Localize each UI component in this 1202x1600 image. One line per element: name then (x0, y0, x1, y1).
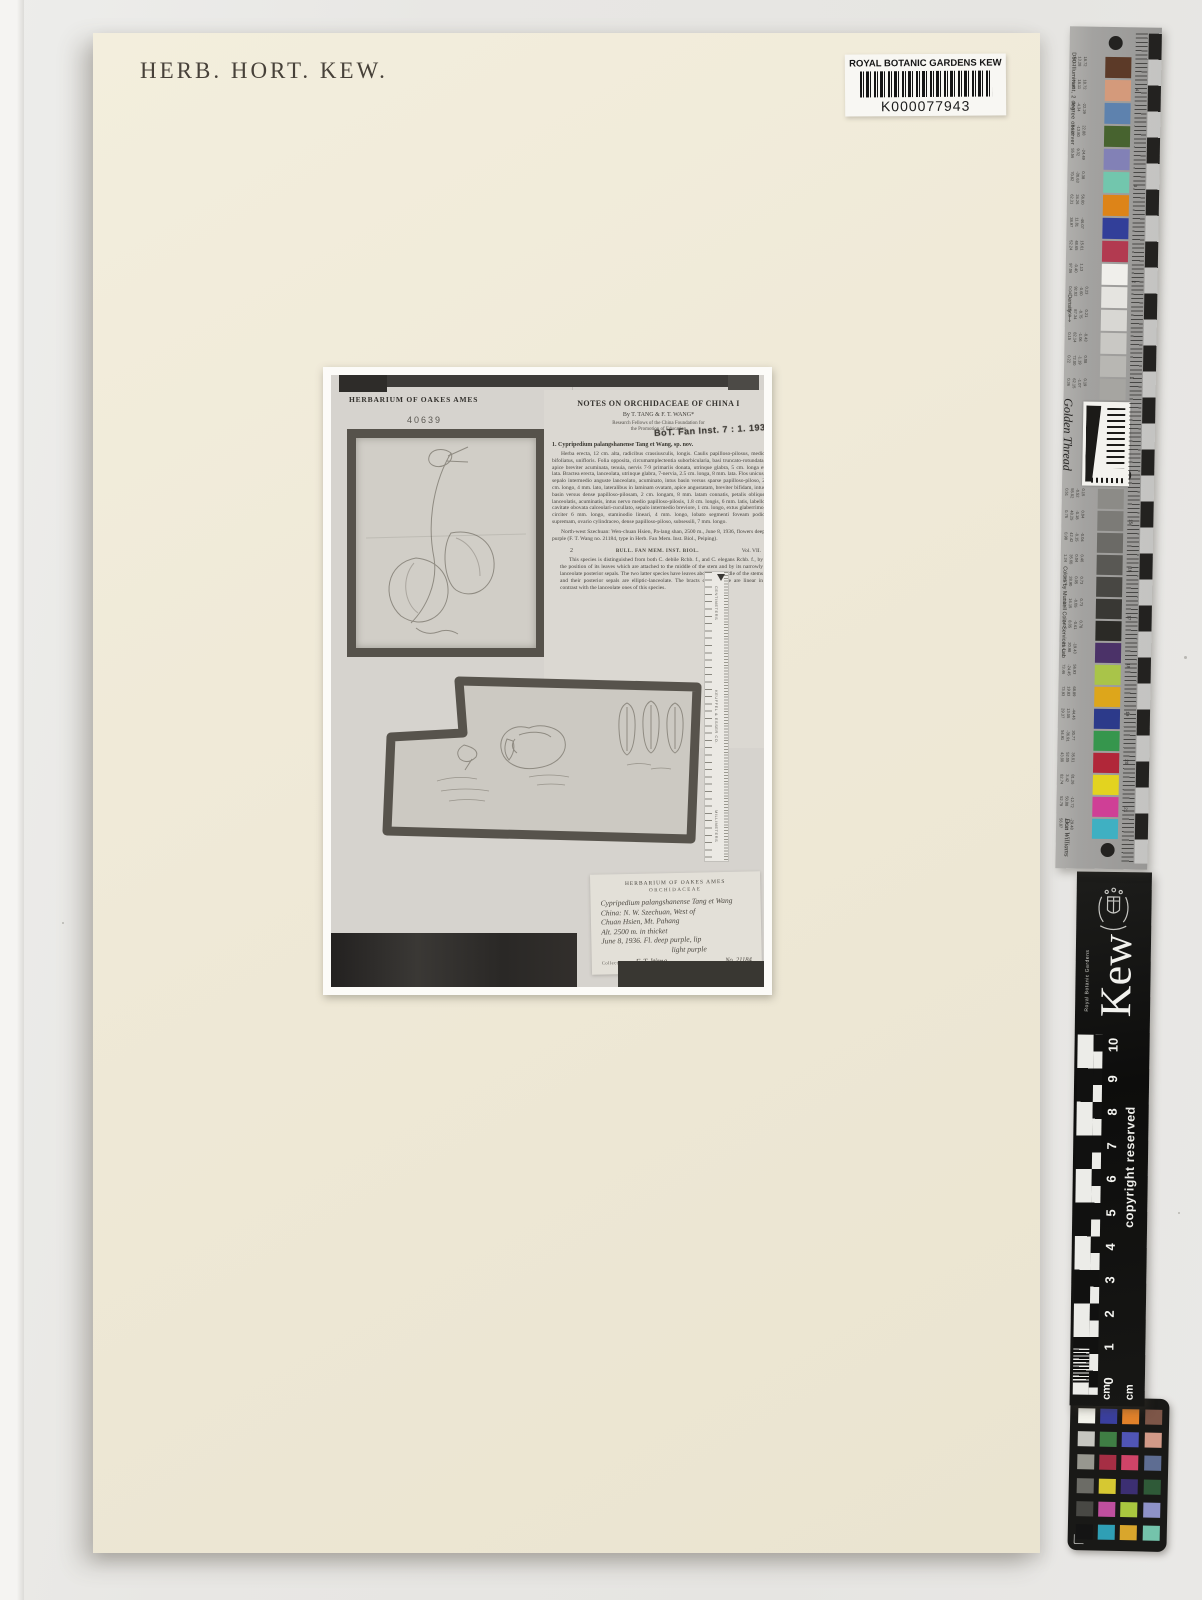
kew-cm-number: 2 (1103, 1306, 1117, 1322)
lab-value: 81.26 (1070, 774, 1075, 794)
lab-value: 82.74 (1059, 774, 1064, 794)
lab-value: 52.79 (1058, 796, 1063, 816)
journal-footer-line: 2 BULL. FAN MEM. INST. BIOL. Vol. VII. (552, 548, 764, 554)
gt-lab-values: 38.1213.2818.72 (1071, 56, 1104, 78)
lab-value: 18.72 (1082, 56, 1087, 77)
kew-cm-number: 6 (1105, 1171, 1119, 1187)
gt-edge-number: 17 (1127, 615, 1132, 620)
lab-value: 0.15 (1080, 488, 1085, 508)
gt-color-patch (1093, 731, 1119, 751)
lab-value: 55.02 (1069, 488, 1074, 508)
photo-dark-corner-topleft (339, 375, 387, 392)
lab-value: 87.34 (1072, 309, 1077, 330)
lab-value: 66.43 (1071, 79, 1076, 100)
label-family: ORCHIDACEAE (600, 886, 750, 894)
royal-botanic-gardens-label: Royal Botanic Gardens (1084, 950, 1091, 1012)
mounted-photograph: HERBARIUM OF OAKES AMES 40639 (323, 367, 772, 995)
lab-value: 56.60 (1080, 194, 1085, 215)
barcode-label: ROYAL BOTANIC GARDENS KEW K000077943 (845, 53, 1006, 116)
lab-value: -30.63 (1075, 171, 1080, 192)
gt-lab-values: 29.3713.05-44.46 (1060, 708, 1093, 729)
color-patch (1100, 1409, 1117, 1424)
gt-color-patch (1105, 57, 1131, 78)
barcode-number: K000077943 (845, 97, 1006, 114)
color-patch (1098, 1525, 1115, 1540)
lab-value: 62.31 (1069, 194, 1074, 215)
ruler-hole (1101, 843, 1115, 857)
gt-color-patch (1104, 126, 1130, 147)
gt-lab-values: 66.4318.1118.72 (1071, 79, 1104, 101)
gt-color-patch (1092, 797, 1118, 817)
kew-mm-hatching (1073, 1348, 1089, 1382)
lab-value: 0.22 (1066, 355, 1071, 376)
target-dashes-icon (1091, 478, 1125, 484)
lab-value: 11.81 (1074, 217, 1079, 238)
kew-cm-number: 10 (1106, 1037, 1120, 1053)
handwritten-line: light purple (671, 943, 751, 954)
running-title: BULL. FAN MEM. INST. BIOL. (616, 549, 699, 554)
color-patch (1099, 1478, 1116, 1493)
lab-value: 48.25 (1069, 510, 1074, 530)
lab-value: -0.52 (1075, 488, 1080, 508)
gt-edge-number: 3 (1133, 185, 1138, 188)
color-checker-grid (1076, 1408, 1162, 1541)
gt-lab-values: 0.7548.25-0.180.04 (1063, 510, 1096, 531)
dissection-sketches (379, 673, 709, 848)
herbarium-sheet: HERB. HORT. KEW. ROYAL BOTANIC GARDENS K… (93, 33, 1040, 1553)
gt-color-patch (1103, 195, 1129, 216)
lab-value: -0.05 (1073, 598, 1078, 618)
kew-crest-icon (1091, 886, 1136, 937)
gt-lab-values: 82.743.4281.26 (1059, 774, 1092, 795)
kew-logo: Kew (1094, 934, 1139, 1018)
color-patch (1076, 1501, 1093, 1516)
gt-lab-values: 0.0492.02-0.600.23 (1067, 286, 1100, 308)
photo-ruler-centimeters-label: CENTIMETERS (714, 586, 719, 620)
gt-lab-values: 1.2435.600.040.46 (1062, 554, 1095, 575)
color-patch (1077, 1478, 1094, 1493)
lab-value: 20.98 (1066, 642, 1071, 662)
gt-edge-number: 21 (1123, 807, 1128, 812)
color-patch (1122, 1432, 1139, 1447)
gt-lab-values: 55.569.32-24.49 (1070, 148, 1103, 170)
lab-value: 0.23 (1084, 286, 1089, 307)
gt-lab-values: 38.9711.81-46.07 (1068, 217, 1101, 239)
color-patch (1144, 1456, 1161, 1471)
gt-lab-values: 1.8716.15-0.050.73 (1062, 598, 1095, 619)
gt-lab-values: 54.91-36.9130.77 (1059, 730, 1092, 751)
lab-value: 56.87 (1058, 818, 1063, 838)
lab-value: 55.56 (1070, 148, 1075, 169)
gt-color-patch (1098, 489, 1124, 509)
lab-value: -1.06 (1077, 332, 1082, 353)
gt-edge-numbers: 432115161718192021 (1070, 26, 1162, 28)
scan-canvas: HERB. HORT. KEW. ROYAL BOTANIC GARDENS K… (0, 0, 1202, 1600)
gt-lab-values: 70.82-30.630.38 (1069, 171, 1102, 193)
gt-lab-values: 3.428.05-0.610.78 (1061, 620, 1094, 641)
gt-lab-values: 73.9319.8368.89 (1060, 686, 1093, 707)
lab-value: 0.08 (1082, 355, 1087, 376)
gt-color-patch (1093, 753, 1119, 773)
lab-value: 28.90 (1068, 576, 1073, 596)
lab-value: 72.00 (1071, 355, 1076, 376)
golden-thread-logo: Golden Thread (1059, 398, 1075, 471)
gt-lab-values: 97.06-0.401.13 (1068, 263, 1101, 285)
lab-value: 0.73 (1079, 576, 1084, 596)
gt-color-patch (1105, 80, 1131, 101)
lab-value: 38.12 (1071, 56, 1076, 77)
dissection-sheet (379, 673, 709, 848)
lab-value: 42.42 (1068, 532, 1073, 552)
gt-lab-values: 52.7950.88-12.72 (1058, 796, 1091, 817)
lab-value: -0.61 (1072, 620, 1077, 640)
lab-value: 49.87 (1070, 102, 1075, 123)
plant-sketch (356, 438, 536, 648)
lab-value: 30.77 (1070, 730, 1075, 750)
color-patch (1144, 1433, 1161, 1448)
gt-lab-values: 0.2272.00-1.190.08 (1066, 355, 1099, 377)
photo-dark-band-bottom-right (618, 961, 764, 987)
lab-value: 9.32 (1075, 148, 1080, 169)
ames-accession-number: 40639 (407, 415, 442, 425)
copyright-reserved-label: copyright reserved (1122, 1106, 1138, 1228)
lab-value: 35.60 (1068, 554, 1073, 574)
wall-edge-strip (0, 0, 24, 1600)
gt-edge-number: 15 (1128, 519, 1133, 524)
gt-lab-values: 62.3124.2656.60 (1069, 194, 1102, 216)
lab-value: 18.72 (1082, 79, 1087, 100)
lab-value: 1.87 (1062, 598, 1067, 618)
lab-value: -46.07 (1079, 217, 1084, 238)
lab-value: 70.82 (1069, 171, 1074, 192)
color-checker-card (1067, 1397, 1169, 1552)
kew-cm-number: 1 (1102, 1339, 1116, 1355)
color-patch (1078, 1408, 1095, 1423)
gt-color-patch (1097, 533, 1123, 553)
color-patch (1098, 1501, 1115, 1516)
lab-value: 92.02 (1073, 286, 1078, 307)
photo-dark-band-bottom-left (331, 933, 577, 987)
dust-speck (1184, 656, 1187, 659)
lab-value: 0.04 (1067, 286, 1072, 307)
photo-ruler-millimeters-label: MILLIMETERS (714, 810, 719, 842)
dust-speck (1178, 1212, 1180, 1214)
lab-value: -22.29 (1081, 102, 1086, 123)
lab-value: 15.61 (1079, 240, 1084, 261)
gt-color-patch (1100, 333, 1126, 354)
lab-value: 3.42 (1064, 774, 1069, 794)
target-wedge-icon (1085, 406, 1101, 482)
label-handwriting: Cypripedium palangshanense Tang et WangC… (600, 895, 751, 955)
lab-value: 35.01 (1070, 752, 1075, 772)
lab-value: 0.04 (1073, 554, 1078, 574)
lab-value: 0.98 (1063, 532, 1068, 552)
lab-value: 38.97 (1068, 217, 1073, 238)
photo-ruler-maker-label: KEUFFEL & ESSER CO. (714, 690, 719, 744)
lab-value: -13.80 (1075, 125, 1080, 146)
lab-value: 73.93 (1060, 686, 1065, 706)
barcode-icon (859, 71, 991, 98)
gt-lab-values: 52.2448.6515.61 (1068, 240, 1101, 262)
color-patch (1120, 1525, 1137, 1540)
lab-value: 13.05 (1065, 708, 1070, 728)
lab-value: 29.37 (1060, 708, 1065, 728)
photo-ruler: CENTIMETERS KEUFFEL & ESSER CO. MILLIMET… (704, 571, 729, 862)
color-patch (1099, 1455, 1116, 1470)
color-patch (1122, 1409, 1139, 1424)
photograph-image: HERBARIUM OF OAKES AMES 40639 (331, 375, 764, 987)
gt-color-patch (1092, 819, 1118, 839)
lab-value: -44.46 (1071, 708, 1076, 728)
color-patch (1143, 1479, 1160, 1494)
lab-value: 97.06 (1068, 263, 1073, 284)
gt-edge-number: 4 (1135, 89, 1140, 92)
cm-unit-label: cm (1101, 1384, 1113, 1400)
lab-value: 62.15 (1071, 378, 1076, 399)
lab-value: 13.28 (1077, 56, 1082, 77)
lab-value: 44.26 (1070, 125, 1075, 146)
card-corner-mark (1074, 1534, 1084, 1544)
cm-unit-label: cm (1124, 1384, 1136, 1400)
color-patch (1143, 1502, 1160, 1517)
gt-lab-values: 0.5155.02-0.520.15 (1064, 488, 1097, 509)
gt-lab-values: 44.26-13.8022.88 (1070, 125, 1103, 147)
lab-value: 52.05 (1064, 752, 1069, 772)
article-title: NOTES ON ORCHIDACEAE OF CHINA I (552, 399, 764, 408)
color-patch (1077, 1455, 1094, 1470)
lab-value: 0.73 (1078, 598, 1083, 618)
gt-color-patch (1100, 356, 1126, 377)
gt-color-patch (1093, 775, 1119, 795)
photo-ruler-cm-ticks (705, 572, 712, 861)
gt-color-patch (1101, 310, 1127, 331)
lab-value: -24.49 (1081, 148, 1086, 169)
lab-value: 8.05 (1067, 620, 1072, 640)
lab-value: 19.83 (1066, 686, 1071, 706)
lab-value: 0.21 (1083, 309, 1088, 330)
ames-herbarium-header: HERBARIUM OF OAKES AMES (349, 395, 478, 404)
article-byline: By T. TANG & F. T. WANG* (552, 412, 764, 418)
resolution-target (1082, 401, 1130, 486)
gt-lab-values: 56.87-27.17-29.48 (1058, 818, 1091, 839)
gt-lab-values: 31.4120.98-19.43 (1061, 642, 1094, 663)
color-patch (1142, 1525, 1159, 1540)
lab-value: 0.15 (1066, 332, 1071, 353)
lab-value: -12.72 (1069, 796, 1074, 816)
dust-speck (62, 922, 64, 924)
lab-value: -0.75 (1078, 309, 1083, 330)
lab-value: -0.43 (1083, 332, 1088, 353)
lab-value: 0.46 (1079, 554, 1084, 574)
gt-edge-number: 16 (1127, 567, 1132, 572)
lab-value: -0.40 (1073, 263, 1078, 284)
gt-lab-values: 43.0052.0535.01 (1059, 752, 1092, 773)
gt-edge-number: 19 (1125, 711, 1130, 716)
lab-value: 1.13 (1079, 263, 1084, 284)
lab-value: 48.65 (1073, 240, 1078, 261)
lab-value: 0.19 (1082, 378, 1087, 399)
lab-value: 0.51 (1064, 488, 1069, 508)
gt-color-patch (1095, 621, 1121, 641)
gt-color-patch (1094, 687, 1120, 707)
lab-value: -36.91 (1065, 730, 1070, 750)
lab-value: 73.46 (1061, 664, 1066, 684)
kew-cm-number: 3 (1103, 1272, 1117, 1288)
kew-cm-number: 5 (1104, 1205, 1118, 1221)
gt-color-patch (1104, 149, 1130, 170)
gt-color-patch (1095, 665, 1121, 685)
lab-value: 52.24 (1068, 240, 1073, 261)
lab-value: 22.88 (1081, 125, 1086, 146)
lab-value: -19.43 (1072, 642, 1077, 662)
lab-value: -0.18 (1074, 510, 1079, 530)
ruler-hole (1109, 36, 1123, 50)
species-heading: 1. Cypripedium palangshanense Tang et Wa… (552, 442, 764, 448)
lab-value: 18.11 (1076, 79, 1081, 100)
photo-dark-band-top (339, 375, 745, 387)
lab-value: 1.57 (1062, 576, 1067, 596)
lab-value: -0.60 (1078, 286, 1083, 307)
lab-value: 24.26 (1074, 194, 1079, 215)
gt-color-patch (1103, 172, 1129, 193)
lab-value: -1.07 (1076, 378, 1081, 399)
kew-cm-number: 7 (1105, 1138, 1119, 1154)
lab-value: -0.15 (1074, 532, 1079, 552)
gt-lab-values: 0.1582.14-1.06-0.43 (1066, 332, 1099, 354)
gt-color-patch (1096, 555, 1122, 575)
lab-value: -24.45 (1066, 664, 1071, 684)
color-patch (1121, 1479, 1138, 1494)
lab-value: 68.89 (1071, 686, 1076, 706)
color-patch (1100, 1432, 1117, 1447)
lab-value: -27.17 (1063, 818, 1068, 838)
lab-value: 54.91 (1059, 730, 1064, 750)
color-patch (1078, 1431, 1095, 1446)
herb-hort-kew-stamp: HERB. HORT. KEW. (140, 58, 388, 84)
lab-value: 0.09 (1067, 309, 1072, 330)
lab-value: 0.38 (1080, 171, 1085, 192)
lab-value: 50.88 (1064, 796, 1069, 816)
lab-value: 0.05 (1073, 576, 1078, 596)
gt-lab-column: 38.1213.2818.7266.4318.1118.7249.87-4.34… (1070, 26, 1162, 28)
kew-cm-number: 4 (1104, 1238, 1118, 1254)
gt-color-patch (1101, 264, 1127, 285)
lab-value: 0.75 (1063, 510, 1068, 530)
color-patch (1120, 1502, 1137, 1517)
barcode-institution: ROYAL BOTANIC GARDENS KEW (845, 57, 1006, 69)
kew-cm-number: 9 (1106, 1070, 1120, 1086)
photo-ruler-mm-ticks (724, 572, 728, 861)
gt-color-patch (1101, 287, 1127, 308)
kew-cm-number: 8 (1106, 1104, 1120, 1120)
gt-lab-values: 1.5728.900.050.73 (1062, 576, 1095, 597)
gt-lab-values: 0.0987.34-0.750.21 (1067, 309, 1100, 331)
color-patch (1121, 1455, 1138, 1470)
lab-value: 43.00 (1059, 752, 1064, 772)
volume-label: Vol. VII. (742, 548, 761, 554)
lab-value: 0.78 (1078, 620, 1083, 640)
kew-number-column: 109876543210 (1077, 871, 1152, 872)
photo-ruler-arrow (717, 574, 725, 581)
target-bars-icon (1106, 408, 1125, 468)
gt-color-patch (1099, 379, 1125, 400)
specimen-frame (347, 429, 545, 657)
lab-value: 3.42 (1061, 620, 1066, 640)
gt-lab-values: 0.3662.15-1.070.19 (1065, 378, 1098, 400)
gt-color-patch (1102, 241, 1128, 262)
lab-value: -1.19 (1077, 355, 1082, 376)
locality-paragraph: North-west Szechuan: Wen-chuan Hsien, Pa… (552, 529, 764, 543)
lab-value: -0.04 (1079, 532, 1084, 552)
gt-color-patch (1096, 599, 1122, 619)
golden-thread-scale: D50 Illuminant, 2 degree observer Densit… (1055, 26, 1162, 869)
latin-description: Herba erecta, 12 cm. alta, radicibus cra… (552, 451, 764, 526)
kew-scale-ruler: Royal Botanic Gardens Kew copyright rese… (1070, 871, 1152, 1406)
gt-color-patch (1104, 103, 1130, 124)
lab-value: 56.93 (1072, 664, 1077, 684)
gt-lab-values: 0.9842.42-0.15-0.04 (1063, 532, 1096, 553)
discussion-paragraph: This species is distinguished from both … (560, 557, 763, 591)
gt-color-patch (1097, 511, 1123, 531)
gt-edge-number: 1 (1130, 377, 1135, 380)
lab-value: 31.41 (1061, 642, 1066, 662)
page-number: 2 (570, 548, 573, 554)
gt-color-patch (1095, 643, 1121, 663)
lab-value: 16.15 (1067, 598, 1072, 618)
handwritten-label: HERBARIUM OF OAKES AMES ORCHIDACEAE Cypr… (590, 871, 762, 975)
lab-value: -4.34 (1076, 102, 1081, 123)
lab-value: 82.14 (1072, 332, 1077, 353)
gt-lab-values: 49.87-4.34-22.29 (1070, 102, 1103, 124)
gt-edge-number: 18 (1126, 663, 1131, 668)
lab-value: 1.24 (1062, 554, 1067, 574)
lab-value: 0.04 (1080, 510, 1085, 530)
gt-color-patch (1096, 577, 1122, 597)
gt-color-patch (1094, 709, 1120, 729)
color-patch (1145, 1410, 1162, 1425)
gt-patch-strip (1070, 26, 1162, 28)
gt-edge-number: 2 (1131, 281, 1136, 284)
gt-lab-values: 73.46-24.4556.93 (1061, 664, 1094, 685)
gt-edge-number: 20 (1124, 759, 1129, 764)
lab-value: -29.48 (1069, 818, 1074, 838)
gt-color-patch (1102, 218, 1128, 239)
lab-value: 0.36 (1065, 378, 1070, 399)
